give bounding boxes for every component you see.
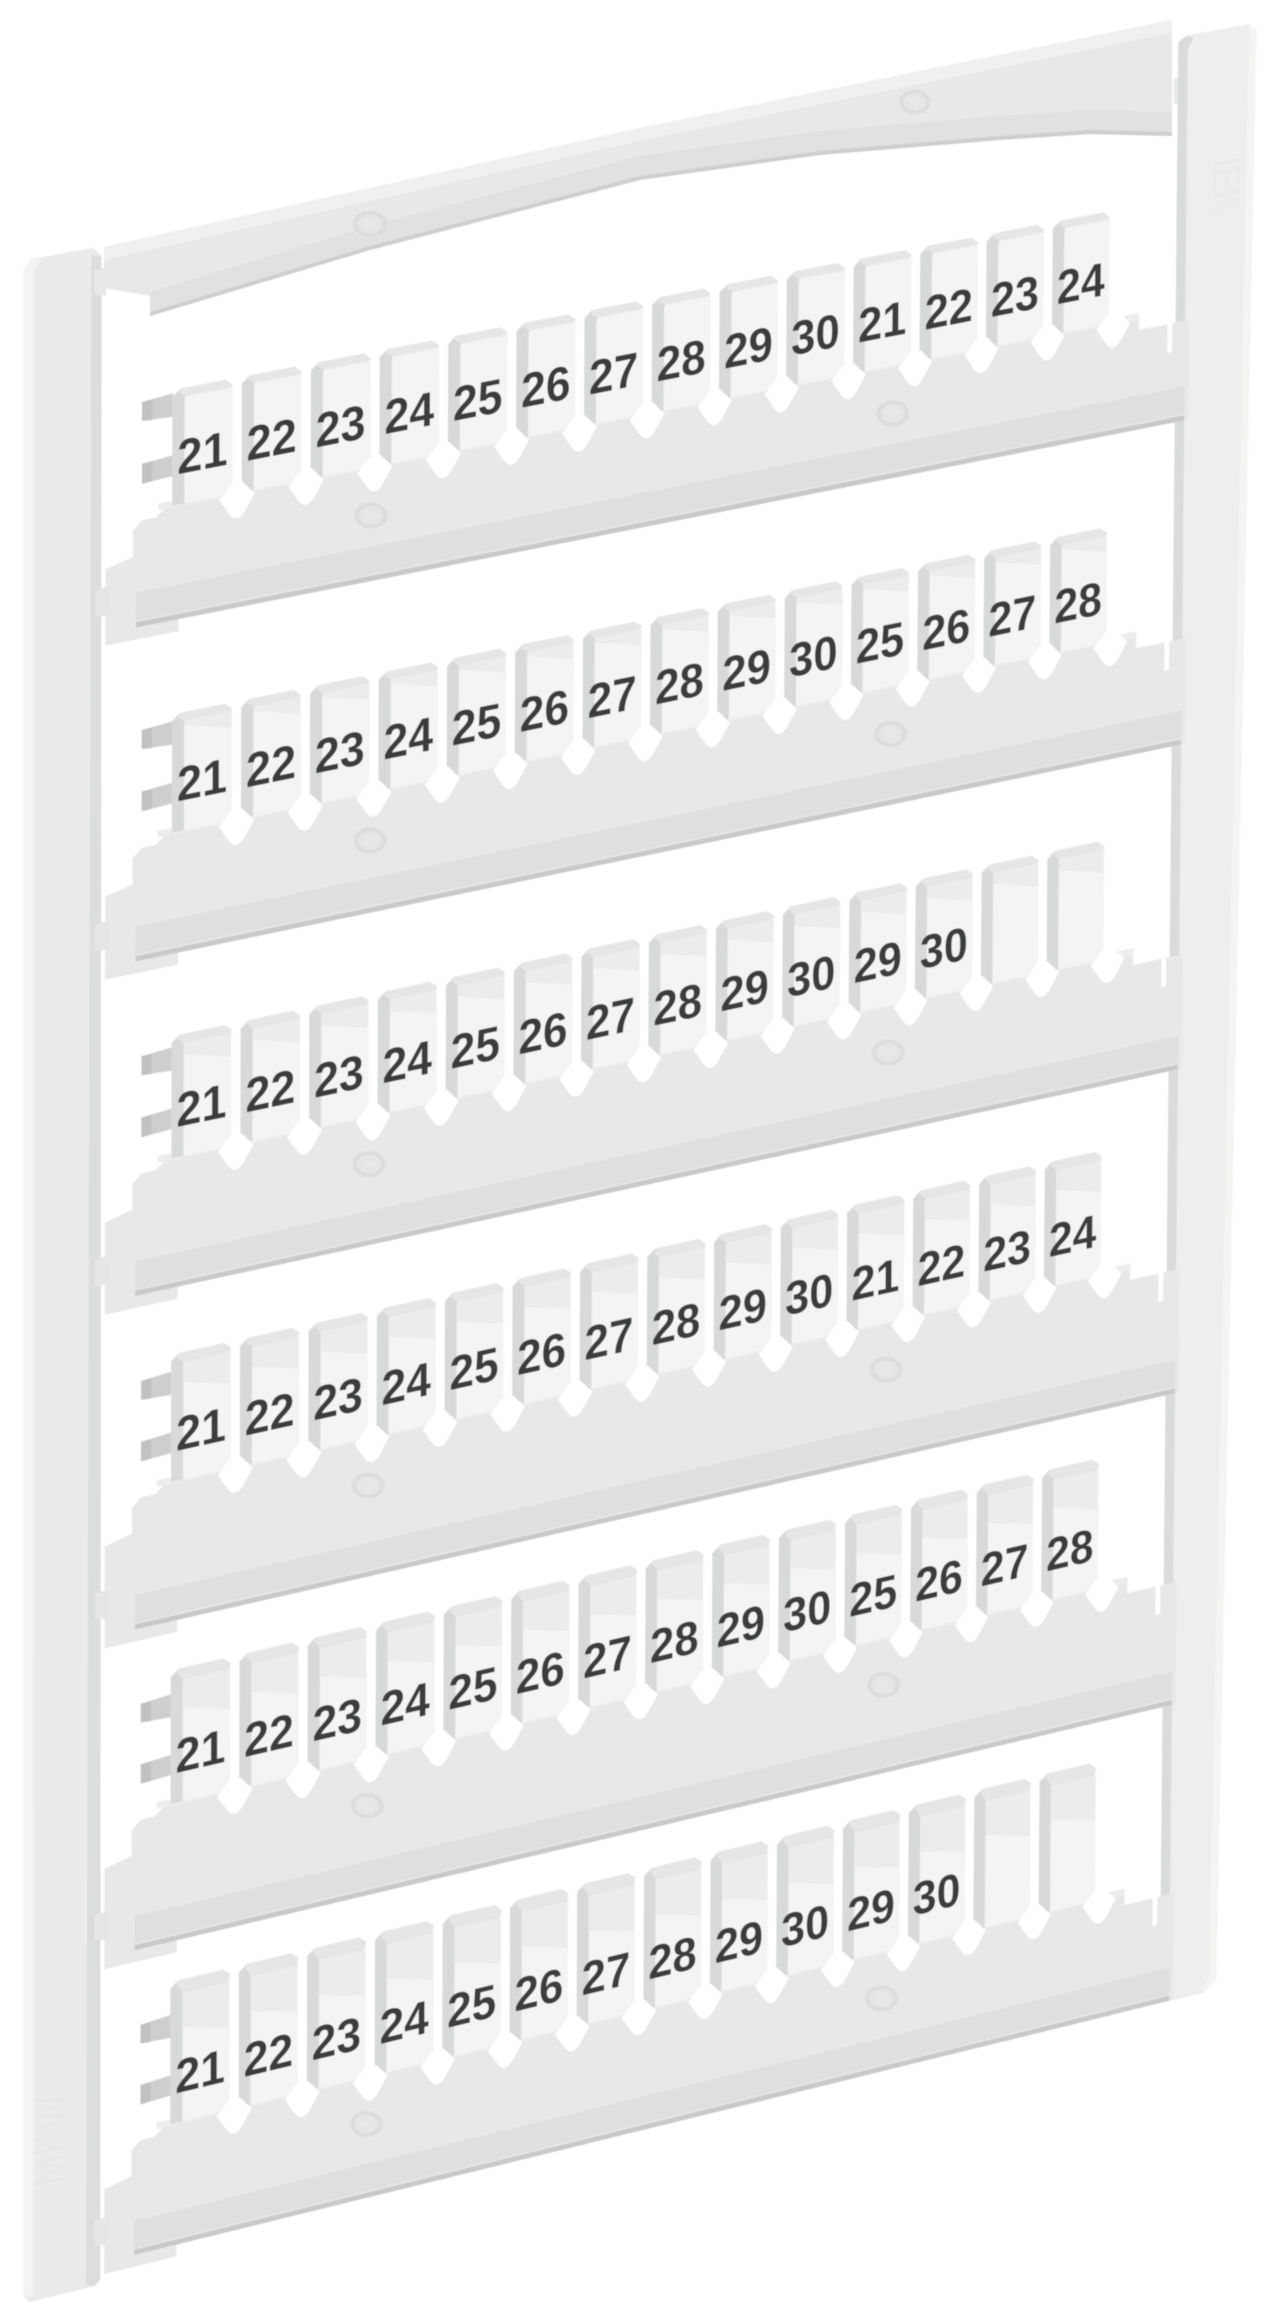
svg-text:21: 21 (177, 748, 227, 812)
svg-text:22: 22 (245, 1058, 295, 1123)
svg-text:27: 27 (583, 1625, 632, 1689)
svg-text:MKW: MKW (24, 2088, 74, 2192)
svg-text:28: 28 (1046, 1518, 1094, 1581)
svg-text:23: 23 (315, 719, 365, 783)
svg-text:27: 27 (988, 585, 1036, 648)
svg-text:25: 25 (856, 611, 905, 675)
svg-text:28: 28 (1054, 571, 1102, 634)
svg-text:30: 30 (791, 303, 840, 366)
svg-text:23: 23 (316, 394, 366, 458)
svg-text:25: 25 (453, 368, 503, 431)
svg-text:28: 28 (657, 329, 706, 392)
svg-text:24: 24 (1057, 252, 1106, 314)
svg-text:28: 28 (652, 1292, 701, 1356)
svg-text:26: 26 (915, 1549, 963, 1612)
svg-text:24: 24 (382, 1030, 432, 1094)
svg-text:23: 23 (991, 265, 1040, 327)
svg-text:30: 30 (787, 944, 836, 1008)
svg-text:26: 26 (517, 1321, 566, 1385)
svg-text:28: 28 (650, 1609, 699, 1673)
svg-text:27: 27 (587, 665, 636, 728)
svg-text:22: 22 (246, 733, 296, 797)
svg-text:23: 23 (314, 1044, 364, 1108)
svg-text:25: 25 (849, 1564, 897, 1627)
svg-text:27: 27 (589, 342, 639, 405)
svg-text:29: 29 (724, 316, 773, 379)
svg-text:24: 24 (384, 380, 434, 444)
svg-text:28: 28 (655, 651, 704, 714)
svg-text:26: 26 (516, 1640, 565, 1704)
svg-text:28: 28 (653, 972, 702, 1036)
svg-text:24: 24 (1049, 1204, 1097, 1267)
svg-text:24: 24 (381, 1352, 431, 1416)
svg-text:22: 22 (917, 1234, 965, 1297)
svg-text:26: 26 (520, 679, 570, 742)
svg-text:21: 21 (177, 422, 228, 486)
svg-text:30: 30 (920, 917, 968, 980)
svg-text:27: 27 (981, 1533, 1029, 1596)
svg-text:26: 26 (518, 1001, 567, 1065)
svg-text:25: 25 (452, 693, 502, 756)
svg-text:21: 21 (176, 1396, 226, 1461)
svg-text:29: 29 (718, 1277, 767, 1341)
svg-text:30: 30 (785, 1263, 834, 1326)
svg-text:30: 30 (789, 624, 838, 688)
svg-text:IEK: IEK (1205, 153, 1248, 216)
svg-text:27: 27 (584, 1306, 633, 1370)
svg-text:23: 23 (983, 1219, 1031, 1282)
svg-text:29: 29 (722, 638, 771, 702)
svg-text:25: 25 (449, 1336, 498, 1400)
svg-text:21: 21 (176, 1073, 226, 1138)
svg-text:29: 29 (720, 958, 769, 1022)
svg-text:22: 22 (924, 277, 973, 340)
svg-text:21: 21 (851, 1248, 899, 1311)
svg-text:26: 26 (521, 355, 571, 418)
svg-text:23: 23 (313, 1367, 363, 1431)
svg-text:27: 27 (586, 987, 635, 1051)
svg-text:26: 26 (922, 598, 971, 661)
svg-text:22: 22 (247, 408, 297, 472)
svg-text:29: 29 (853, 931, 902, 994)
svg-text:22: 22 (245, 1382, 295, 1446)
svg-text:24: 24 (383, 707, 433, 770)
svg-text:21: 21 (858, 290, 907, 353)
svg-text:25: 25 (451, 1015, 501, 1079)
